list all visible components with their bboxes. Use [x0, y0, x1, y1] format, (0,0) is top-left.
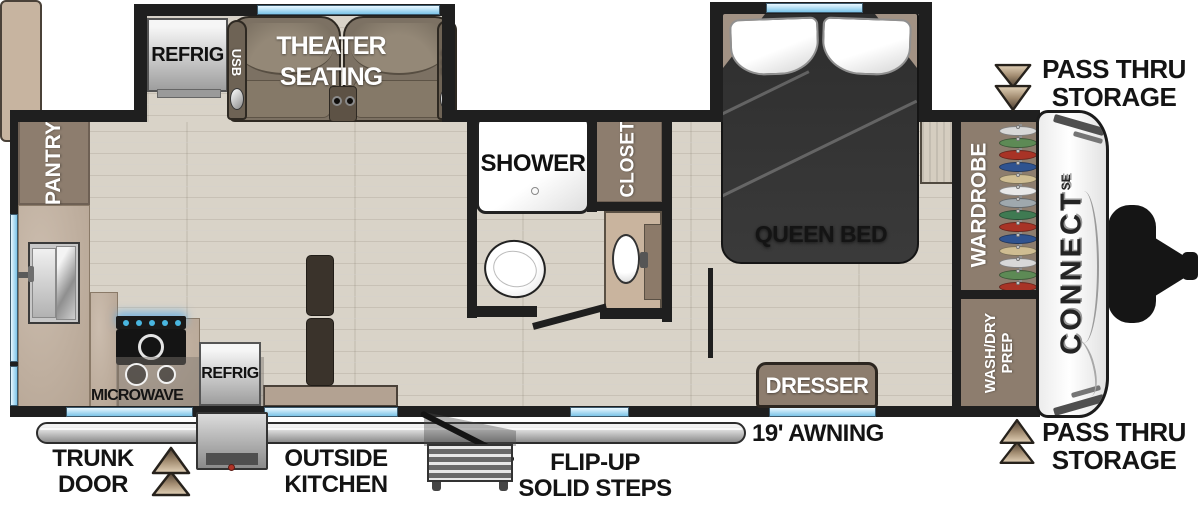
hanging-garment-icon: [999, 234, 1037, 244]
window: [769, 407, 876, 417]
bedroom-sliding-door: [708, 268, 713, 358]
shower-drain-icon: [531, 187, 539, 195]
pillow: [729, 16, 820, 76]
entry-counter: [263, 385, 398, 407]
travel-trailer-floorplan: PANTRY REFRIG MICROWAVE REFRIG USB USB T…: [0, 0, 1199, 505]
awning-tube: [36, 422, 746, 444]
wall: [10, 110, 140, 122]
dresser-label: DRESSER: [759, 373, 875, 399]
vanity-sink: [612, 234, 640, 284]
hanging-garment-icon: [999, 210, 1037, 220]
closet-label: CLOSET: [595, 116, 662, 202]
hitch-coupler: [1182, 252, 1198, 280]
outside-kitchen-unit: [196, 412, 268, 470]
window: [10, 366, 18, 406]
bathroom-wall: [467, 114, 477, 318]
bathroom-wall: [587, 114, 597, 212]
brand-logo: CONNECTSE: [1039, 113, 1106, 415]
pantry-label: PANTRY: [18, 120, 90, 205]
window: [264, 407, 398, 417]
outside-griddle-burner-icon: [157, 365, 176, 384]
range-burner-strip: [116, 316, 186, 329]
stool-seat: [306, 255, 334, 316]
window: [570, 407, 629, 417]
flip-up-steps-label: FLIP-UPSOLID STEPS: [500, 450, 690, 502]
stool-seat: [306, 318, 334, 386]
bathroom-wall: [662, 114, 672, 322]
bathroom-wall: [467, 306, 537, 317]
hanging-garment-icon: [999, 246, 1037, 256]
faucet-spout-icon: [28, 266, 34, 282]
hanging-garment-icon: [999, 150, 1037, 160]
pass-thru-storage-label-bottom: PASS THRUSTORAGE: [1030, 418, 1198, 474]
cupholder-icon: [345, 96, 355, 106]
queen-bed-label: QUEEN BED: [723, 221, 919, 248]
pass-thru-arrow-down-icon: [992, 62, 1034, 114]
wall: [442, 110, 713, 122]
slideout-wall: [442, 4, 455, 122]
hanging-garment-icon: [999, 270, 1037, 280]
front-cap: CONNECTSE: [1036, 110, 1109, 418]
outside-kitchen-label: OUTSIDEKITCHEN: [266, 446, 406, 498]
theater-seating-label: THEATERSEATING: [241, 31, 421, 93]
pillow: [821, 16, 912, 76]
hanging-garment-icon: [999, 174, 1037, 184]
hanging-garment-icon: [999, 162, 1037, 172]
gas-knob-icon: [228, 464, 235, 471]
window: [766, 3, 863, 13]
hanging-garment-icon: [999, 126, 1037, 136]
step-leg: [432, 482, 441, 491]
hanging-garment-icon: [999, 198, 1037, 208]
hanging-garment-icon: [999, 138, 1037, 148]
wardrobe-label: WARDROBE: [956, 120, 1002, 290]
hanging-garment-icon: [999, 222, 1037, 232]
wardrobe-wall: [952, 290, 1037, 299]
shower: SHOWER: [476, 115, 590, 214]
blanket-fold-line: [721, 70, 810, 117]
washdry-prep-label: WASH/DRYPREP: [961, 299, 1037, 407]
propane-tank-cover: [1108, 205, 1156, 323]
sink-basin: [32, 248, 56, 318]
vanity-faucet-icon: [640, 252, 648, 268]
window: [10, 214, 18, 362]
outside-kitchen-refrigerator: REFRIG: [199, 342, 261, 406]
bedroom-slideout-wall: [919, 2, 932, 122]
bedroom-slideout-wall: [710, 2, 723, 122]
bathroom-wall: [600, 308, 662, 319]
window: [257, 5, 440, 15]
slideout-wall: [134, 4, 147, 122]
outside-griddle-burner-icon: [125, 363, 148, 386]
refrigerator: REFRIG: [147, 18, 228, 92]
dresser: DRESSER: [756, 362, 878, 408]
window: [66, 407, 193, 417]
wardrobe-clothes: [999, 126, 1039, 294]
trunk-door-label: TRUNKDOOR: [38, 446, 148, 498]
hanging-garment-icon: [999, 258, 1037, 268]
trunk-door-arrow-up-icon: [149, 444, 193, 498]
blanket-fold-line: [721, 100, 917, 199]
microwave-label: MICROWAVE: [77, 387, 197, 405]
hanging-garment-icon: [999, 186, 1037, 196]
cupholder-icon: [332, 96, 342, 106]
burner-flames-icon: [123, 320, 129, 326]
pass-thru-storage-label-top: PASS THRUSTORAGE: [1030, 55, 1198, 111]
awning-label: 19' AWNING: [752, 420, 884, 448]
sink-drainboard: [56, 246, 76, 320]
bathroom-wall: [595, 202, 662, 211]
wardrobe-wall: [952, 120, 961, 410]
